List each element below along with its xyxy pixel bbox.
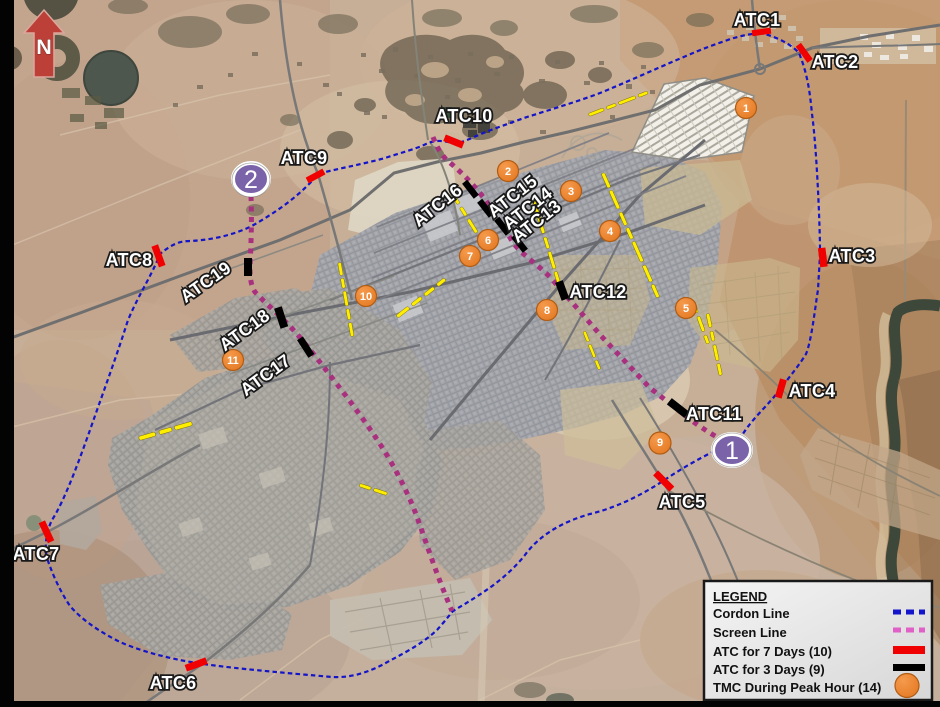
svg-text:N: N (36, 35, 52, 59)
svg-text:2: 2 (505, 166, 511, 178)
svg-text:5: 5 (683, 303, 689, 315)
svg-text:1: 1 (743, 103, 749, 115)
svg-text:8: 8 (544, 305, 550, 317)
svg-text:ATC3: ATC3 (829, 246, 876, 266)
svg-text:ATC7: ATC7 (13, 544, 60, 564)
svg-text:Screen Line: Screen Line (713, 625, 787, 640)
svg-text:ATC4: ATC4 (789, 381, 836, 401)
svg-text:2: 2 (244, 166, 258, 194)
svg-text:ATC for 7 Days (10): ATC for 7 Days (10) (713, 644, 832, 659)
svg-text:11: 11 (227, 355, 239, 367)
svg-text:ATC8: ATC8 (106, 250, 153, 270)
svg-text:7: 7 (467, 251, 473, 263)
svg-text:Cordon Line: Cordon Line (713, 606, 790, 621)
svg-text:10: 10 (360, 291, 372, 303)
svg-text:ATC5: ATC5 (659, 492, 706, 512)
svg-text:ATC12: ATC12 (569, 282, 626, 302)
svg-text:1: 1 (725, 437, 739, 465)
svg-text:ATC6: ATC6 (150, 673, 197, 693)
svg-text:ATC9: ATC9 (281, 148, 328, 168)
svg-text:6: 6 (485, 235, 491, 247)
svg-text:LEGEND: LEGEND (713, 589, 767, 604)
svg-text:ATC10: ATC10 (435, 106, 492, 126)
svg-text:9: 9 (657, 437, 663, 449)
svg-text:TMC During Peak Hour (14): TMC During Peak Hour (14) (713, 680, 881, 695)
svg-text:3: 3 (568, 186, 574, 198)
svg-text:ATC1: ATC1 (734, 10, 781, 30)
svg-text:4: 4 (607, 226, 614, 238)
svg-text:ATC2: ATC2 (812, 52, 859, 72)
svg-text:ATC for 3 Days (9): ATC for 3 Days (9) (713, 662, 825, 677)
svg-text:ATC11: ATC11 (686, 404, 742, 424)
